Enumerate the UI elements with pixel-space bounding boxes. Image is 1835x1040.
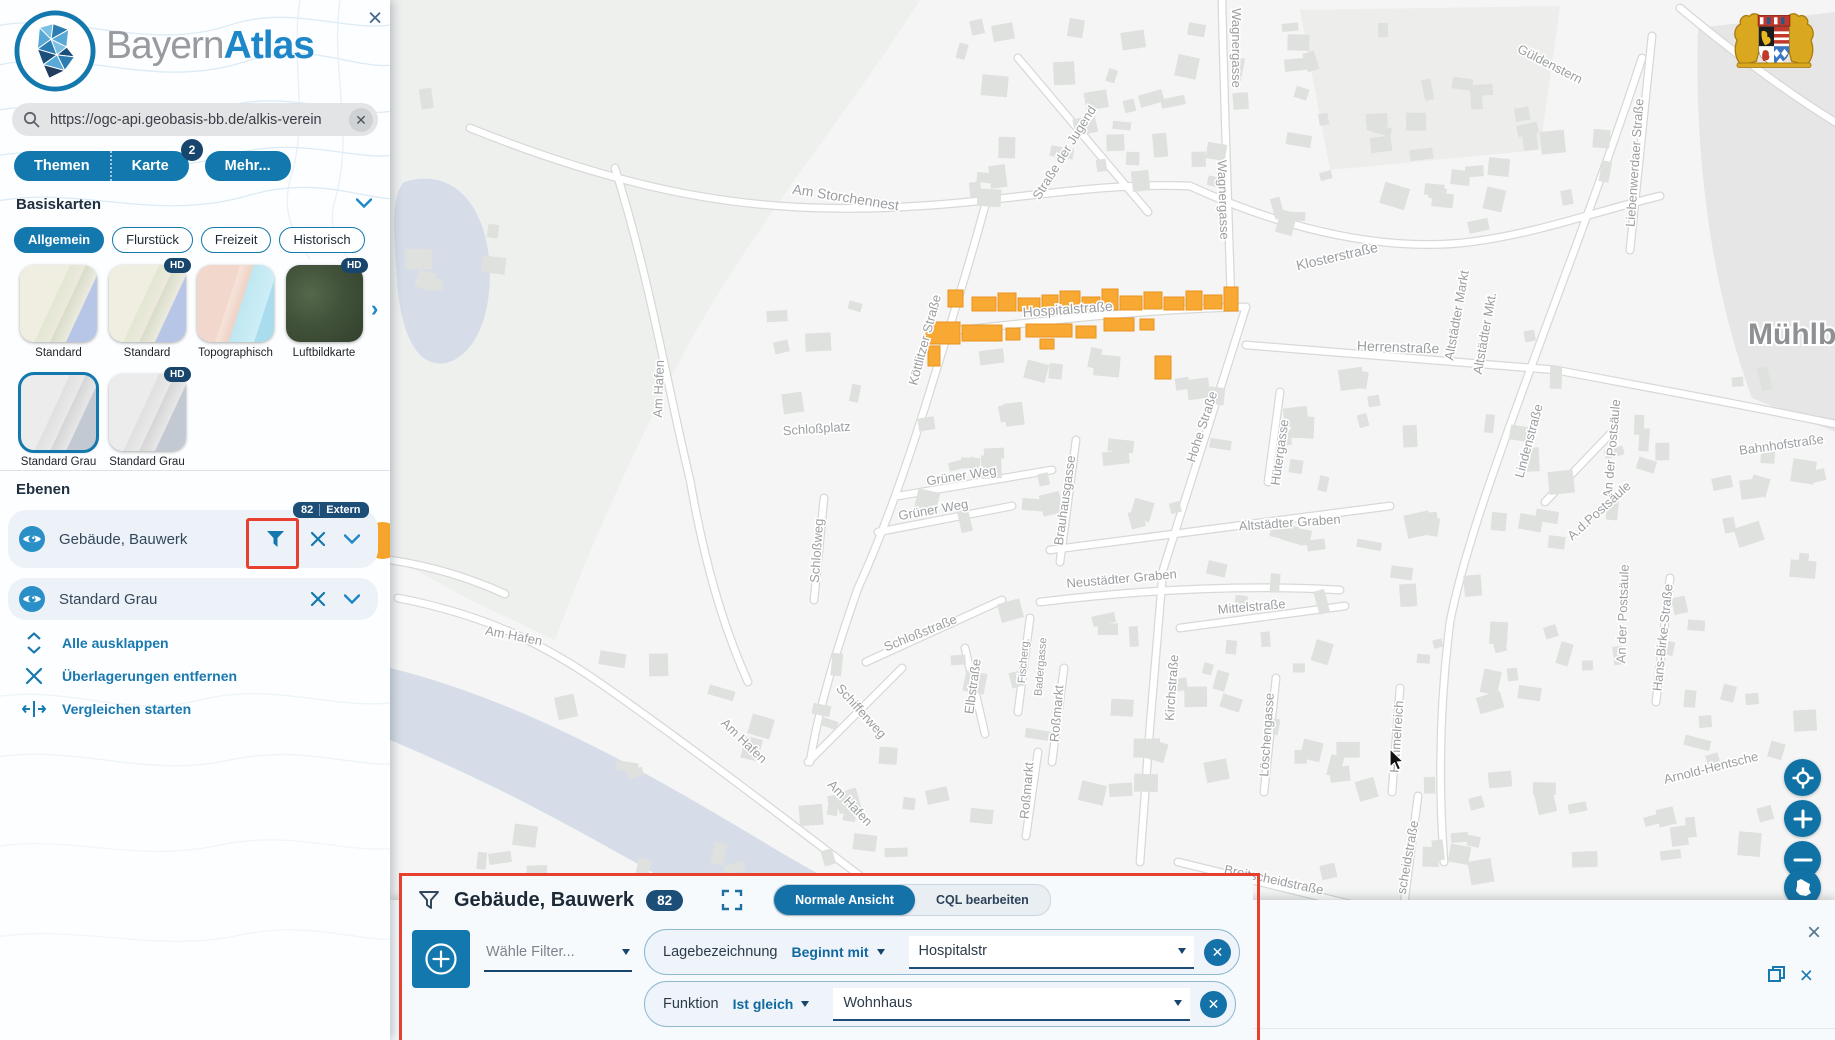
- filter-value-dropdown[interactable]: Wohnhaus: [833, 988, 1190, 1021]
- filter-value-dropdown[interactable]: Hospitalstr: [909, 936, 1195, 969]
- layer-filter-dialog: Gebäude, Bauwerk 82 Normale AnsichtCQL b…: [400, 874, 1253, 1038]
- hd-badge: HD: [164, 258, 190, 273]
- section-divider: [0, 470, 390, 471]
- karte-count-badge: 2: [181, 139, 203, 161]
- basemap-thumb-label: Luftbildkarte: [279, 347, 369, 359]
- basemap-thumb-standard-grau-hd[interactable]: HD: [109, 374, 186, 451]
- layer-label: Standard Grau: [59, 591, 301, 608]
- basemap-thumb-standard-hd[interactable]: HD: [109, 265, 186, 342]
- filtered-building: [1006, 328, 1020, 340]
- basemap-thumb-label: Standard Grau: [14, 456, 104, 468]
- filtered-building: [1224, 287, 1238, 311]
- filtered-building: [962, 325, 1002, 341]
- search-bar: ✕: [12, 103, 378, 136]
- layer-filter-button[interactable]: [266, 530, 285, 548]
- filter-dialog-header: Gebäude, Bauwerk 82 Normale AnsichtCQL b…: [418, 884, 1051, 916]
- bayernatlas-logo[interactable]: [14, 10, 96, 92]
- filtered-building: [998, 293, 1016, 311]
- filtered-building: [1164, 297, 1184, 310]
- thumbnails-next-icon[interactable]: ›: [371, 296, 378, 322]
- filtered-building: [1204, 295, 1222, 309]
- filtered-building: [1104, 318, 1134, 331]
- hd-badge: HD: [164, 367, 190, 382]
- view-toggle: Normale AnsichtCQL bearbeiten: [773, 884, 1051, 916]
- chevron-down-icon: [1178, 948, 1186, 954]
- street-label: Herrenstraße: [1357, 338, 1440, 357]
- basemap-thumb-topographisch[interactable]: [197, 265, 274, 342]
- hd-badge: HD: [341, 258, 367, 273]
- choose-filter-dropdown[interactable]: Wähle Filter...: [484, 944, 632, 972]
- plus-icon: [1793, 809, 1813, 829]
- close-panel-icon[interactable]: ×: [1801, 918, 1827, 944]
- nav-themen-button[interactable]: Themen: [14, 151, 110, 181]
- filtered-building: [1120, 296, 1142, 310]
- circle-plus-icon: [424, 942, 458, 976]
- dropdown-underline: [484, 970, 632, 972]
- street-label: Wagnergasse: [1229, 8, 1244, 88]
- basemap-thumb-luftbildkarte-hd[interactable]: HD: [286, 265, 363, 342]
- tab-freizeit[interactable]: Freizeit: [201, 227, 272, 253]
- ebenen-heading: Ebenen: [16, 481, 70, 498]
- filtered-building: [1040, 339, 1054, 349]
- restore-window-icon[interactable]: [1767, 964, 1787, 984]
- filter-field-label: Funktion: [663, 996, 719, 1012]
- basemap-thumb-standard-grau[interactable]: [20, 374, 97, 451]
- zoom-in-button[interactable]: [1784, 800, 1821, 837]
- filtered-building: [1026, 324, 1072, 337]
- basemap-thumb-label: Topographisch: [191, 347, 281, 359]
- remove-overlays-action[interactable]: Überlagerungen entfernen: [0, 667, 237, 685]
- basemap-thumb-standard[interactable]: [20, 265, 97, 342]
- toggle-normale-ansicht[interactable]: Normale Ansicht: [774, 885, 915, 915]
- chevron-down-icon: [877, 949, 885, 955]
- filter-dialog-title: Gebäude, Bauwerk: [454, 889, 634, 912]
- layer-expand-icon[interactable]: [344, 534, 360, 544]
- basiskarten-tabs: AllgemeinFlurstückFreizeitHistorisch: [14, 227, 365, 253]
- layer-row-standard-grau[interactable]: Standard Grau: [8, 578, 378, 620]
- geolocate-button[interactable]: [1784, 759, 1821, 796]
- expand-panel-button[interactable]: [721, 889, 743, 911]
- app-title: BayernAtlas: [106, 24, 314, 68]
- close-sidebar-icon[interactable]: ×: [362, 5, 388, 31]
- filtered-building: [948, 290, 963, 307]
- bayernatlas-app: WagnergasseWagnergasseStraße der JugendA…: [0, 0, 1835, 1040]
- filter-row-funktion: FunktionIst gleichWohnhaus✕: [644, 981, 1236, 1027]
- basemap-thumb-label: Standard: [102, 347, 192, 359]
- bavaria-coat-of-arms: [1730, 8, 1818, 74]
- basemap-thumb-label: Standard: [14, 347, 104, 359]
- tab-historisch[interactable]: Historisch: [279, 227, 364, 253]
- feature-count-badge: 82: [646, 890, 683, 911]
- minus-icon: [1793, 850, 1813, 870]
- tab-flurstück[interactable]: Flurstück: [112, 227, 193, 253]
- street-label: Wagnergasse: [1215, 160, 1233, 240]
- filter-row-lagebezeichnung: LagebezeichnungBeginnt mitHospitalstr✕: [644, 929, 1240, 975]
- chevron-down-icon: [622, 949, 630, 955]
- basemap-thumb-label: Standard Grau: [102, 456, 192, 468]
- expand-all-action[interactable]: Alle ausklappen: [0, 632, 169, 654]
- unfold-icon: [22, 632, 46, 654]
- basiskarten-heading: Basiskarten: [16, 196, 101, 213]
- search-input[interactable]: [48, 111, 349, 129]
- nav-mehr-button[interactable]: Mehr...: [205, 151, 291, 181]
- remove-filter-button[interactable]: ✕: [1200, 991, 1227, 1018]
- start-compare-action[interactable]: Vergleichen starten: [0, 701, 191, 717]
- filter-operator-dropdown[interactable]: Beginnt mit: [792, 944, 885, 960]
- filtered-building: [1144, 292, 1162, 309]
- mouse-cursor: [1388, 748, 1406, 772]
- remove-layer-icon[interactable]: [310, 531, 326, 547]
- compare-icon: [22, 701, 46, 717]
- filter-funnel-icon: [266, 530, 285, 548]
- layer-label: Gebäude, Bauwerk: [59, 531, 257, 548]
- main-nav: Themen Karte Mehr... 2: [14, 151, 291, 181]
- filtered-building: [1140, 319, 1154, 330]
- clear-search-icon[interactable]: ✕: [349, 108, 373, 132]
- bavaria-extent-icon: [1792, 877, 1814, 899]
- close-icon: [22, 667, 46, 685]
- visibility-eye-icon[interactable]: [18, 585, 46, 613]
- search-icon: [23, 111, 40, 128]
- corner-brackets-icon: [721, 889, 743, 911]
- town-label: Mühlberg: [1748, 318, 1835, 351]
- filter-operator-dropdown[interactable]: Ist gleich: [733, 996, 810, 1012]
- filtered-building: [1076, 326, 1096, 338]
- filter-field-label: Lagebezeichnung: [663, 944, 778, 960]
- remove-layer-icon[interactable]: [310, 591, 326, 607]
- filtered-building: [972, 297, 996, 311]
- geolocate-icon: [1792, 767, 1814, 789]
- filter-outline-icon: [418, 889, 440, 911]
- layer-row-gebaeude[interactable]: Gebäude, Bauwerk: [8, 510, 378, 568]
- sidebar: BayernAtlas × ✕ Themen Karte Mehr... 2 B…: [0, 0, 390, 1040]
- collapse-section-icon[interactable]: [356, 198, 372, 208]
- toggle-cql-bearbeiten[interactable]: CQL bearbeiten: [915, 885, 1050, 915]
- remove-filter-button[interactable]: ✕: [1204, 939, 1231, 966]
- close-window-icon[interactable]: ×: [1794, 961, 1819, 990]
- tab-allgemein[interactable]: Allgemein: [14, 227, 104, 253]
- chevron-down-icon: [1174, 1000, 1182, 1006]
- filtered-building: [1155, 356, 1171, 379]
- street-label: Am Hafen: [650, 360, 667, 418]
- chevron-down-icon: [801, 1001, 809, 1007]
- nav-karte-button[interactable]: Karte: [110, 151, 189, 181]
- filtered-building: [1186, 291, 1202, 310]
- choose-filter-placeholder: Wähle Filter...: [486, 944, 575, 960]
- layer-expand-icon[interactable]: [344, 594, 360, 604]
- layer-extern-badge: 82 Extern: [293, 502, 369, 518]
- add-filter-button[interactable]: [412, 930, 470, 988]
- panel-divider: [1246, 1028, 1835, 1029]
- visibility-eye-icon[interactable]: [18, 525, 46, 553]
